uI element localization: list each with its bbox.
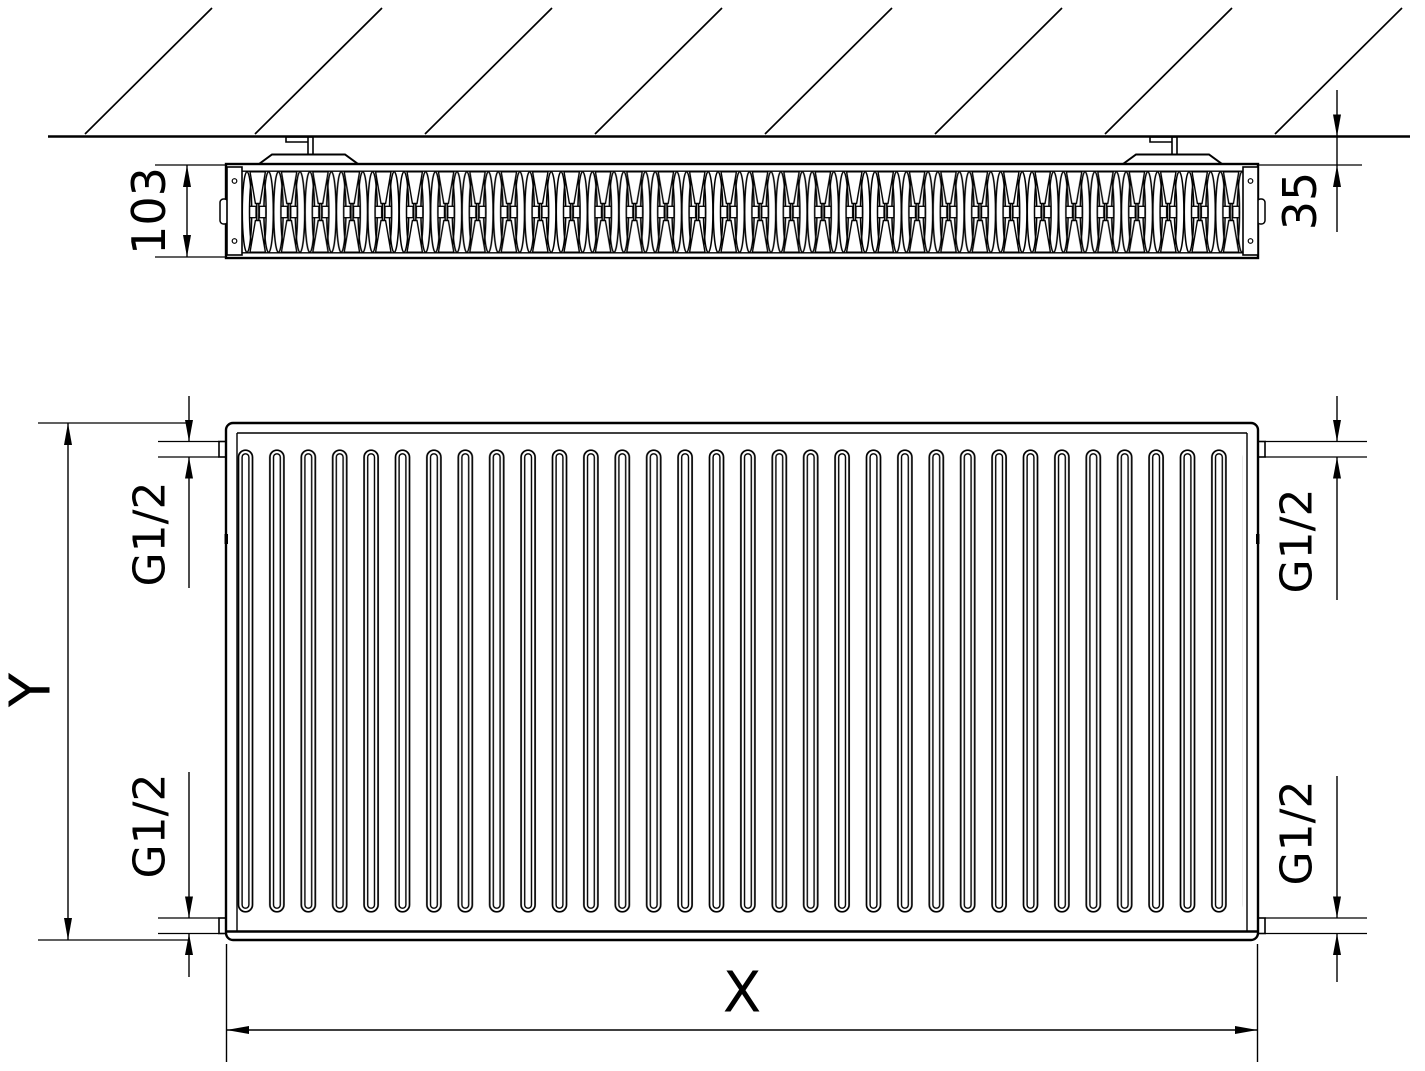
arrow-up [185,457,193,479]
wall-hatching [85,8,1402,134]
arrow-down [1333,897,1341,919]
arrow-up [183,165,191,187]
wall-section [48,8,1410,137]
depth-label: 103 [122,167,176,255]
wall-distance-label: 35 [1273,172,1327,231]
dimension-conn-bottom-left: G1/2 [125,772,220,977]
wall-bracket-right [1123,137,1222,164]
arrow-right [1235,1026,1258,1034]
front-panel-channels [238,449,1243,913]
height-label: Y [0,672,64,708]
arrow-down [183,235,191,257]
arrow-up [1333,457,1341,479]
dimension-conn-top-left: G1/2 [125,396,220,588]
arrow-up [64,423,72,445]
side-mark-right [1256,534,1260,544]
conn-top-right-label: G1/2 [1272,489,1323,594]
dimension-depth: 103 [122,165,226,257]
radiator-technical-drawing: 103 35 G1/2 [0,0,1425,1071]
arrow-down [1333,115,1341,137]
radiator-top-view [220,164,1265,258]
end-plate-left [220,167,242,255]
dimension-width: X [227,944,1258,1062]
drawing-svg: 103 35 G1/2 [0,0,1425,1071]
dimension-conn-bottom-right: G1/2 [1265,776,1367,982]
dimension-conn-top-right: G1/2 [1265,396,1367,600]
arrow-left [227,1026,250,1034]
convector-fins [242,170,1243,254]
width-label: X [723,961,761,1026]
radiator-front-view [219,423,1265,940]
arrow-up [185,934,193,956]
arrow-down [64,918,72,940]
conn-bottom-right-label: G1/2 [1272,781,1323,886]
dimension-wall-distance: 35 [1258,90,1362,232]
arrow-up [1333,934,1341,956]
conn-top-left-label: G1/2 [125,482,176,587]
conn-bottom-left-label: G1/2 [125,774,176,879]
arrow-down [185,897,193,919]
arrow-up [1333,165,1341,187]
arrow-down [1333,420,1341,442]
wall-bracket-left [259,137,358,164]
end-plate-right [1243,167,1265,255]
side-mark-left [225,534,229,544]
